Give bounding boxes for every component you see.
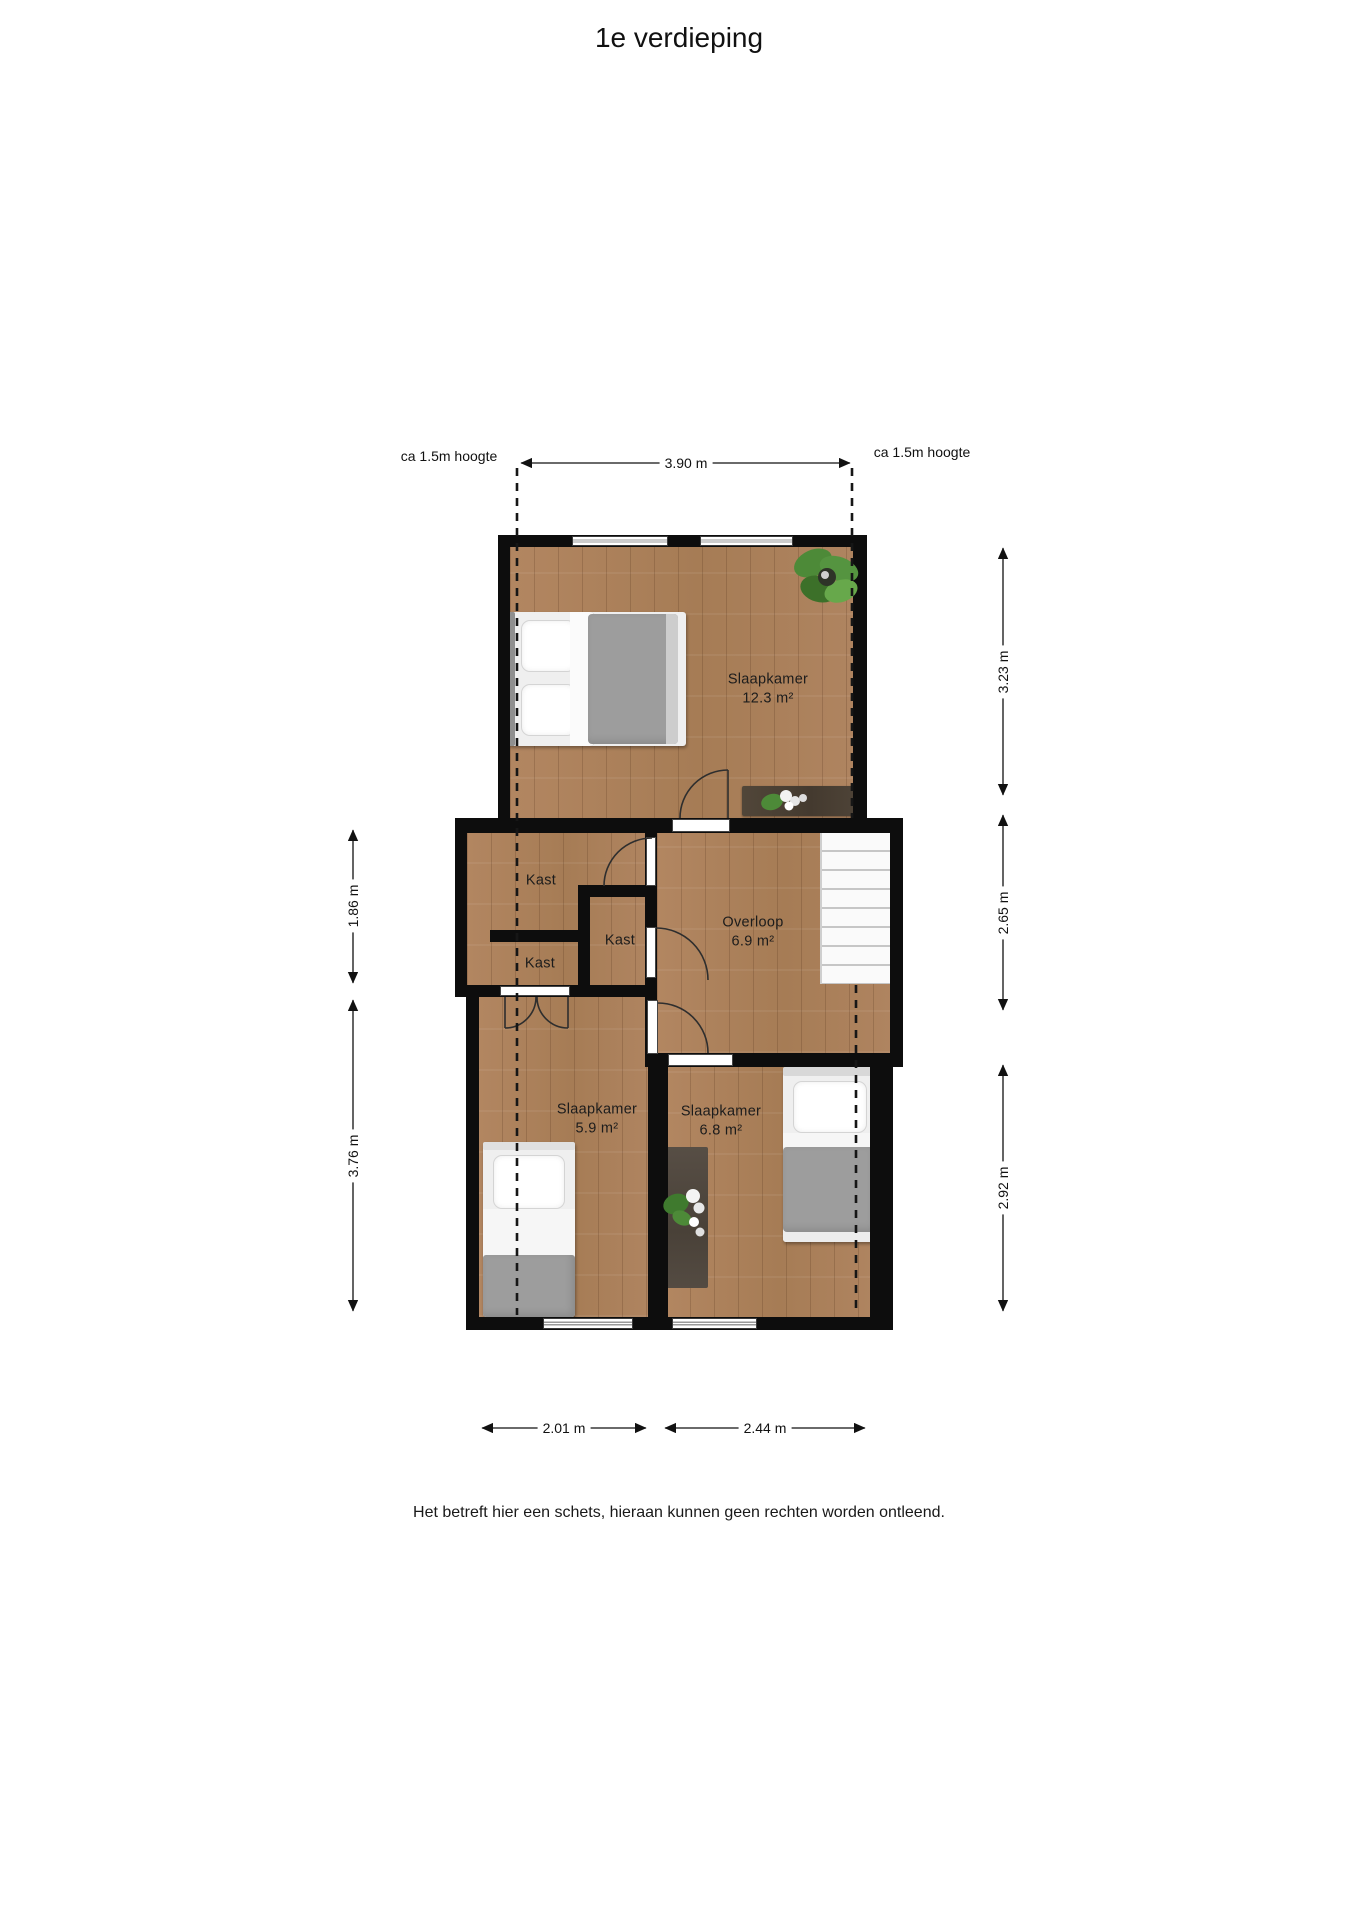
plant-icon: [789, 541, 861, 613]
dim-bottom-left: 2.01 m: [538, 1420, 591, 1436]
wall-bedroom-left-outer: [466, 995, 479, 1330]
room-label-kast-mid: Kast: [605, 932, 635, 951]
bed-sheet: [783, 1133, 877, 1147]
bed-pillow: [493, 1155, 565, 1209]
wall-mid-left: [455, 833, 467, 997]
disclaimer-text: Het betreft hier een schets, hieraan kun…: [0, 1504, 1358, 1522]
single-bed-right: [783, 1067, 877, 1242]
bed-headboard: [783, 1067, 877, 1076]
bed-sheet: [483, 1209, 575, 1259]
room-label-overloop: Overloop 6.9 m²: [722, 913, 783, 950]
room-label-master: Slaapkamer 12.3 m²: [728, 670, 808, 707]
window-bottom-right: [672, 1318, 757, 1329]
room-area: 5.9 m²: [557, 1119, 637, 1138]
floorplan-page: 1e verdieping: [0, 0, 1358, 1920]
door-frame-landing-bedroom: [668, 1054, 733, 1066]
dim-top: 3.90 m: [660, 455, 713, 471]
room-label-kast-lower: Kast: [525, 955, 555, 974]
room-name: Kast: [526, 872, 556, 891]
wall-bedroom-right-outer: [870, 1056, 893, 1330]
room-name: Slaapkamer: [557, 1100, 637, 1119]
window-top-left: [572, 536, 668, 546]
bed-duvet: [588, 614, 678, 744]
room-name: Kast: [605, 932, 635, 951]
door-frame-closet-double: [500, 986, 570, 996]
room-name: Slaapkamer: [728, 670, 808, 689]
bed-pillow: [793, 1081, 867, 1133]
room-area: 12.3 m²: [728, 689, 808, 708]
room-label-kast-top: Kast: [526, 872, 556, 891]
dim-left-upper: 1.86 m: [345, 880, 361, 933]
page-title: 1e verdieping: [0, 22, 1358, 54]
door-frame-closet-mid: [646, 927, 656, 978]
height-note-right: ca 1.5m hoogte: [871, 444, 974, 460]
bed-duvet-edge: [666, 614, 678, 744]
double-bed: [508, 612, 686, 746]
room-area: 6.8 m²: [681, 1121, 761, 1140]
height-note-left: ca 1.5m hoogte: [398, 448, 501, 464]
window-bottom-left: [543, 1318, 633, 1329]
dim-right-lower: 2.92 m: [995, 1162, 1011, 1215]
window-top-right: [700, 536, 793, 546]
single-bed-left: [483, 1142, 575, 1317]
staircase: [820, 833, 890, 984]
dim-right-middle: 2.65 m: [995, 887, 1011, 940]
dim-left-lower: 3.76 m: [345, 1130, 361, 1183]
room-label-bedroom-right: Slaapkamer 6.8 m²: [681, 1102, 761, 1139]
flowers-icon: [758, 786, 818, 816]
wall-closet-divider-h: [490, 930, 590, 942]
room-name: Slaapkamer: [681, 1102, 761, 1121]
bed-foot-strip: [783, 1232, 877, 1242]
room-label-bedroom-left: Slaapkamer 5.9 m²: [557, 1100, 637, 1137]
bed-pillow: [521, 620, 576, 672]
door-leaf-landing-bedroom: [647, 1000, 658, 1054]
bed-pillow: [521, 684, 576, 736]
room-name: Kast: [525, 955, 555, 974]
door-frame-master: [672, 819, 730, 832]
dim-bottom-right: 2.44 m: [739, 1420, 792, 1436]
dim-right-upper: 3.23 m: [995, 646, 1011, 699]
door-frame-closet-top: [646, 837, 656, 886]
room-name: Overloop: [722, 913, 783, 932]
wall-closet-divider-v: [578, 885, 590, 997]
bed-duvet: [483, 1255, 575, 1317]
floor-closet-area: [467, 833, 645, 987]
bed-headboard: [483, 1142, 575, 1150]
bed-duvet: [783, 1147, 877, 1232]
room-area: 6.9 m²: [722, 932, 783, 951]
flowers-icon: [660, 1178, 712, 1248]
wall-mid-right: [890, 818, 903, 1067]
wall-master-left: [498, 535, 510, 833]
